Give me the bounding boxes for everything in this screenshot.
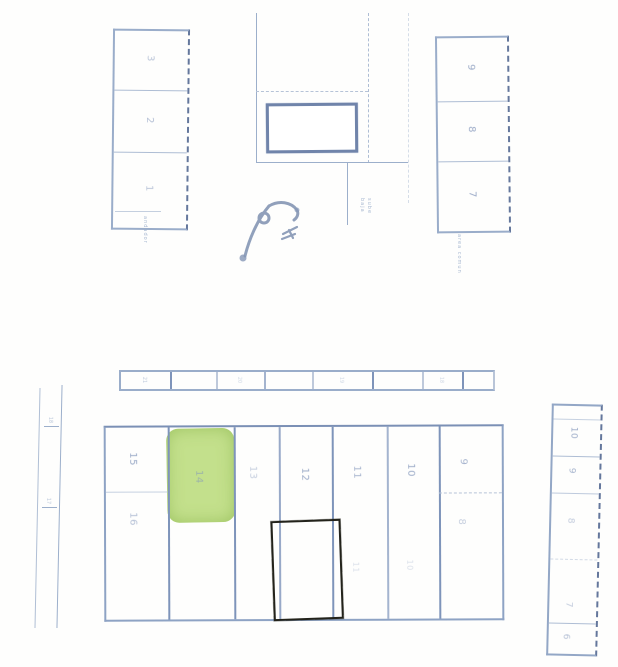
center-wall-right-dashed <box>368 13 369 163</box>
strip-divider <box>462 372 464 389</box>
strip-divider <box>422 372 424 389</box>
stall-label: 3 <box>145 55 156 62</box>
road-tick-label: 17 <box>45 498 51 504</box>
strip-cell-label: 20 <box>236 377 242 383</box>
top-right-stall-block: 9 8 7 <box>435 36 511 234</box>
divider <box>114 90 187 92</box>
grid-column-line <box>439 427 442 619</box>
stall-label-highlighted: 14 <box>193 470 204 484</box>
strip-cell-label: 18 <box>438 377 444 383</box>
divider <box>114 152 187 154</box>
stall-label: 10 <box>405 463 416 477</box>
stall-label: 11 <box>351 465 362 479</box>
stall-label: 15 <box>127 452 138 466</box>
stall-label: 1 <box>143 185 154 192</box>
strip-divider <box>170 372 172 389</box>
center-stub-wall <box>347 163 348 225</box>
hand-drawn-arrow-sketch <box>233 190 318 265</box>
pen-outline-rectangle <box>270 519 343 621</box>
stall-label-faint: 11 <box>351 562 360 573</box>
strip-divider <box>264 372 266 389</box>
annotation-stairs: sube baja <box>358 198 372 214</box>
road-tick-label: 18 <box>47 417 53 423</box>
stall-label: 6 <box>561 634 571 640</box>
strip-divider <box>216 372 218 389</box>
divider <box>438 161 508 163</box>
grid-sub-divider-dashed <box>439 492 502 493</box>
center-floor-line <box>256 162 408 163</box>
stall-label-faint: 10 <box>405 560 414 571</box>
divider <box>553 455 600 457</box>
stall-label: 2 <box>144 117 155 124</box>
top-left-stall-block: 3 2 1 <box>111 29 190 231</box>
stall-label: 10 <box>568 427 578 440</box>
annotation-left: andador <box>142 216 148 244</box>
divider-dashed <box>550 558 597 560</box>
stall-label: 7 <box>563 602 573 608</box>
faint-property-line <box>408 13 409 203</box>
annotation-right: area comun <box>456 234 462 274</box>
top-strip: 21 20 19 18 <box>119 370 495 391</box>
kiosk-rectangle <box>266 103 358 154</box>
site-plan-scan: 3 2 1 9 8 7 andador sube baja area comun <box>0 0 618 667</box>
strip-divider <box>372 372 374 389</box>
right-stall-strip: 10 9 8 7 6 <box>546 403 603 656</box>
annotation-stairs-line1: sube <box>365 198 372 214</box>
stall-label: 9 <box>458 458 469 465</box>
grid-sub-divider <box>106 491 168 492</box>
road-tick <box>44 426 59 427</box>
divider <box>438 101 508 103</box>
stall-label: 8 <box>565 518 575 524</box>
left-block-base-line <box>115 211 161 212</box>
divider <box>552 492 599 494</box>
divider <box>554 418 601 420</box>
strip-divider <box>312 372 314 389</box>
stall-label: 8 <box>466 126 477 133</box>
main-stall-grid: 15 16 14 13 12 11 10 9 8 11 10 <box>104 424 505 621</box>
stall-label: 9 <box>566 468 576 474</box>
annotation-stairs-line2: baja <box>358 198 365 214</box>
strip-cell-label: 19 <box>338 377 344 383</box>
road-line-inner <box>56 385 62 628</box>
strip-cell-label: 21 <box>141 377 147 383</box>
stall-label: 9 <box>465 64 476 71</box>
stall-label: 7 <box>467 191 478 198</box>
stall-label: 16 <box>127 512 138 526</box>
stall-label: 8 <box>456 518 467 525</box>
stall-label: 13 <box>247 466 258 480</box>
grid-column-line <box>234 427 237 619</box>
divider <box>549 622 596 624</box>
center-wall-left <box>256 13 257 163</box>
grid-column-line <box>387 427 390 619</box>
road-line-outer <box>34 388 40 628</box>
center-dashed-line <box>256 91 368 92</box>
stall-label: 12 <box>299 468 310 482</box>
road-tick <box>42 507 57 508</box>
